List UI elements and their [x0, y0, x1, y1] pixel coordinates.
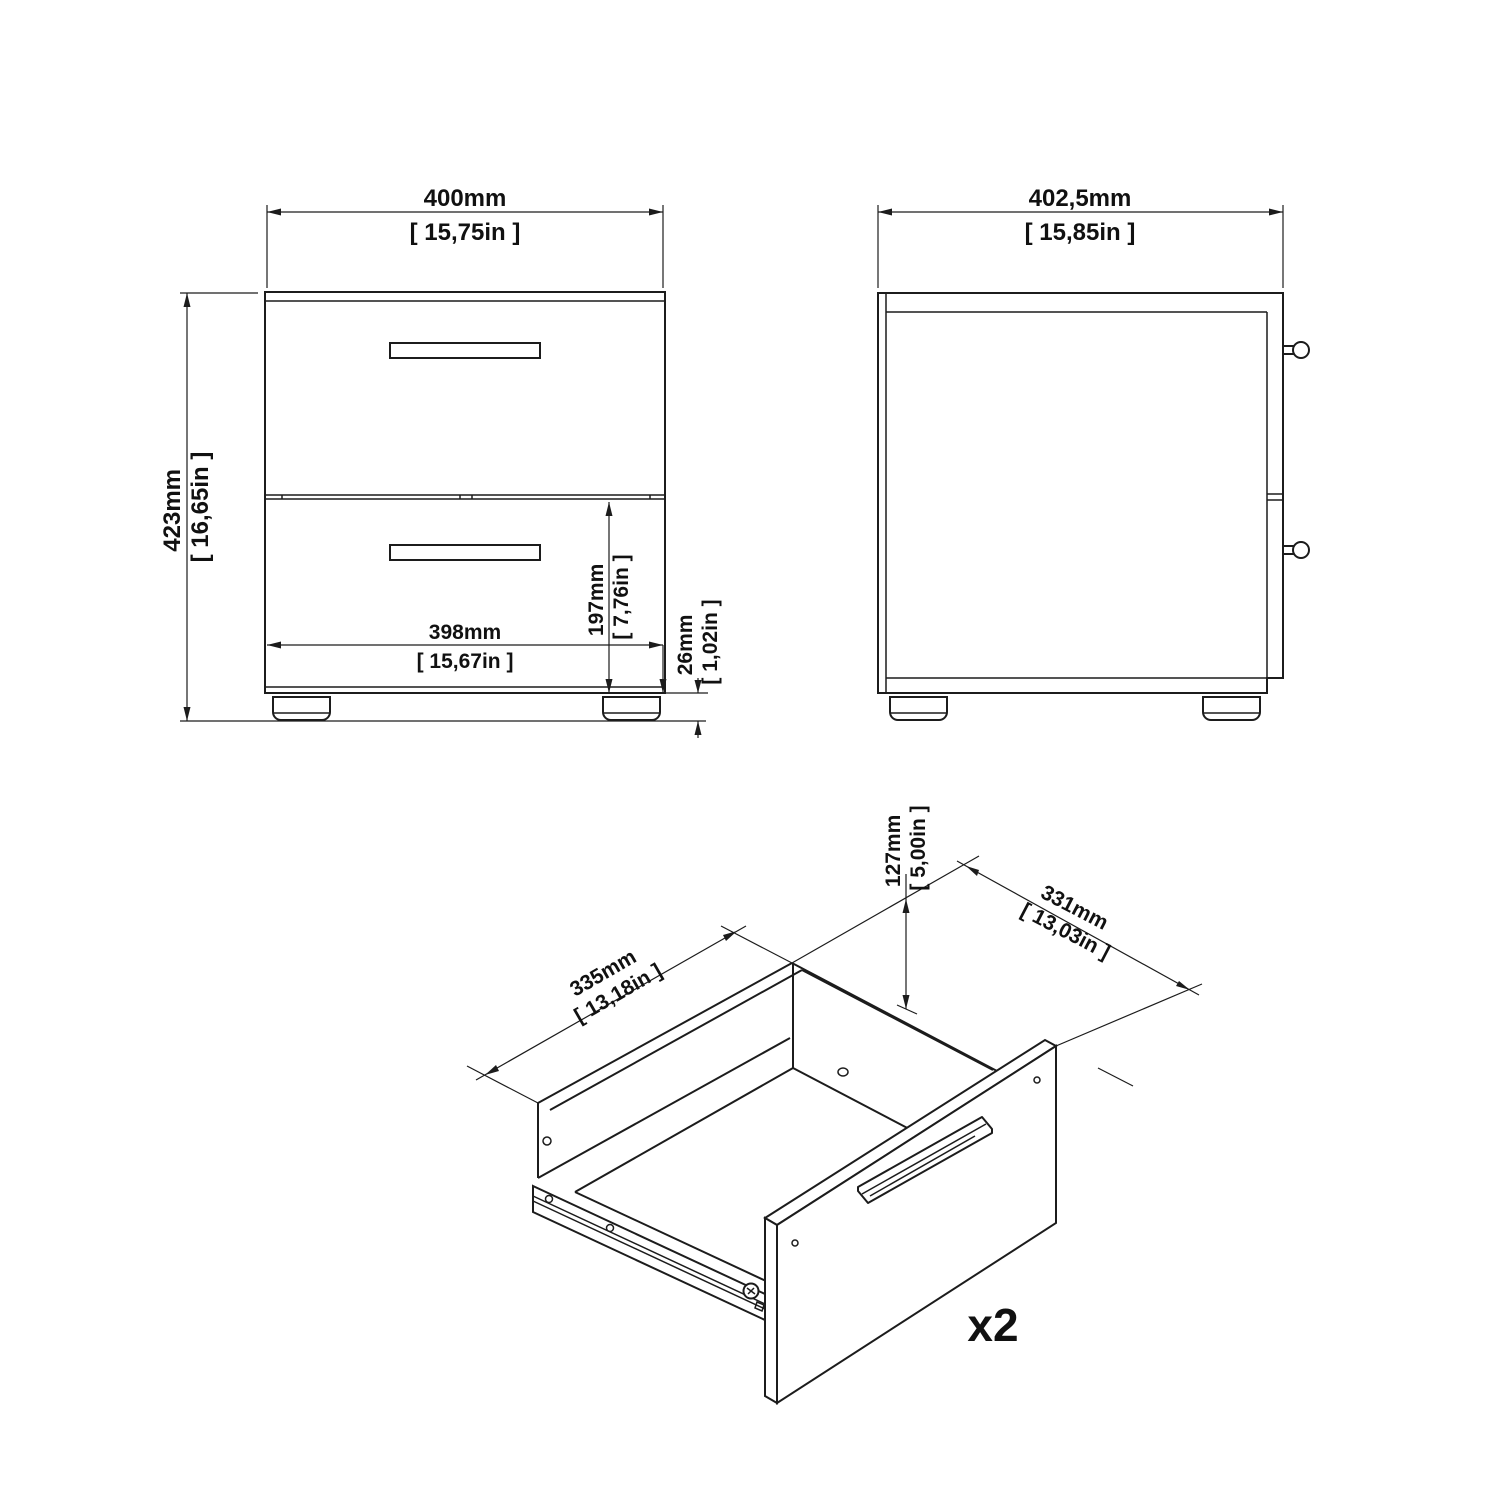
front-drawer-divider [265, 495, 665, 499]
side-panel-screw-hole [543, 1137, 551, 1145]
front-view: 400mm [ 15,75in ] 423mm [ 16,65in ] 398m… [159, 185, 722, 738]
side-depth-dimension: 402,5mm [ 15,85in ] [878, 185, 1283, 288]
side-back-foot [890, 697, 947, 720]
drawer-front-panel [765, 1040, 1133, 1403]
side-view: 402,5mm [ 15,85in ] [878, 185, 1309, 720]
furniture-dimension-drawing: 400mm [ 15,75in ] 423mm [ 16,65in ] 398m… [0, 0, 1500, 1500]
side-top-knob [1283, 342, 1309, 358]
front-drawer-height-dimension: 197mm [ 7,76in ] [585, 502, 633, 693]
side-front-foot [1203, 697, 1260, 720]
drawer-slide-rail [533, 1186, 765, 1320]
front-bottom-drawer-handle [390, 545, 540, 560]
side-bottom-knob [1283, 542, 1309, 558]
side-body-outline [878, 293, 1283, 693]
front-width-label-mm: 400mm [424, 185, 507, 212]
front-width-dimension: 400mm [ 15,75in ] [267, 185, 663, 288]
side-depth-label-mm: 402,5mm [1029, 185, 1132, 212]
front-inner-width-label-mm: 398mm [429, 621, 501, 644]
technical-drawing-page: 400mm [ 15,75in ] 423mm [ 16,65in ] 398m… [0, 0, 1500, 1500]
drawer-height-dimension: 127mm [ 5,00in ] [882, 805, 930, 1014]
drawer-depth-dimension: 331mm [ 13,03in ] [792, 856, 1202, 1046]
drawer-depth-label: 331mm [ 13,03in ] [1017, 877, 1125, 964]
front-left-foot [273, 697, 330, 720]
front-height-dimension: 423mm [ 16,65in ] [159, 293, 258, 721]
drawer-isometric-view: 335mm [ 13,18in ] 331mm [ 13,03in ] 127m… [467, 805, 1202, 1403]
front-inner-width-label-in: [ 15,67in ] [417, 650, 514, 673]
corner-mark [1098, 1068, 1133, 1086]
drawer-length-label: 335mm [ 13,18in ] [558, 938, 666, 1028]
front-top-drawer-handle [390, 343, 540, 358]
drawer-quantity-label: x2 [967, 1299, 1018, 1351]
side-depth-label-in: [ 15,85in ] [1025, 219, 1136, 246]
front-foot-height-label: 26mm [ 1,02in ] [674, 599, 722, 684]
drawer-length-dimension: 335mm [ 13,18in ] [467, 926, 792, 1103]
front-right-foot [603, 697, 660, 720]
back-panel-screw-hole [838, 1068, 848, 1076]
front-height-label: 423mm [ 16,65in ] [159, 452, 214, 563]
front-width-label-in: [ 15,75in ] [410, 219, 521, 246]
front-foot-height-dimension: 26mm [ 1,02in ] [666, 599, 722, 738]
